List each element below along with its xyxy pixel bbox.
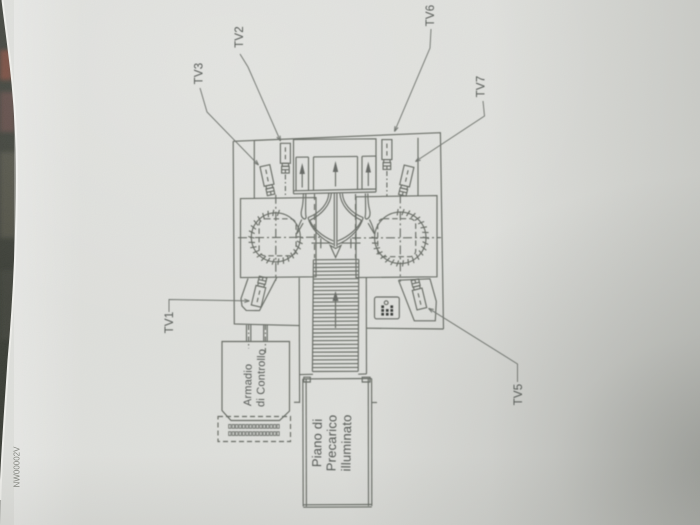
svg-text:NW00002V: NW00002V [13, 446, 22, 488]
